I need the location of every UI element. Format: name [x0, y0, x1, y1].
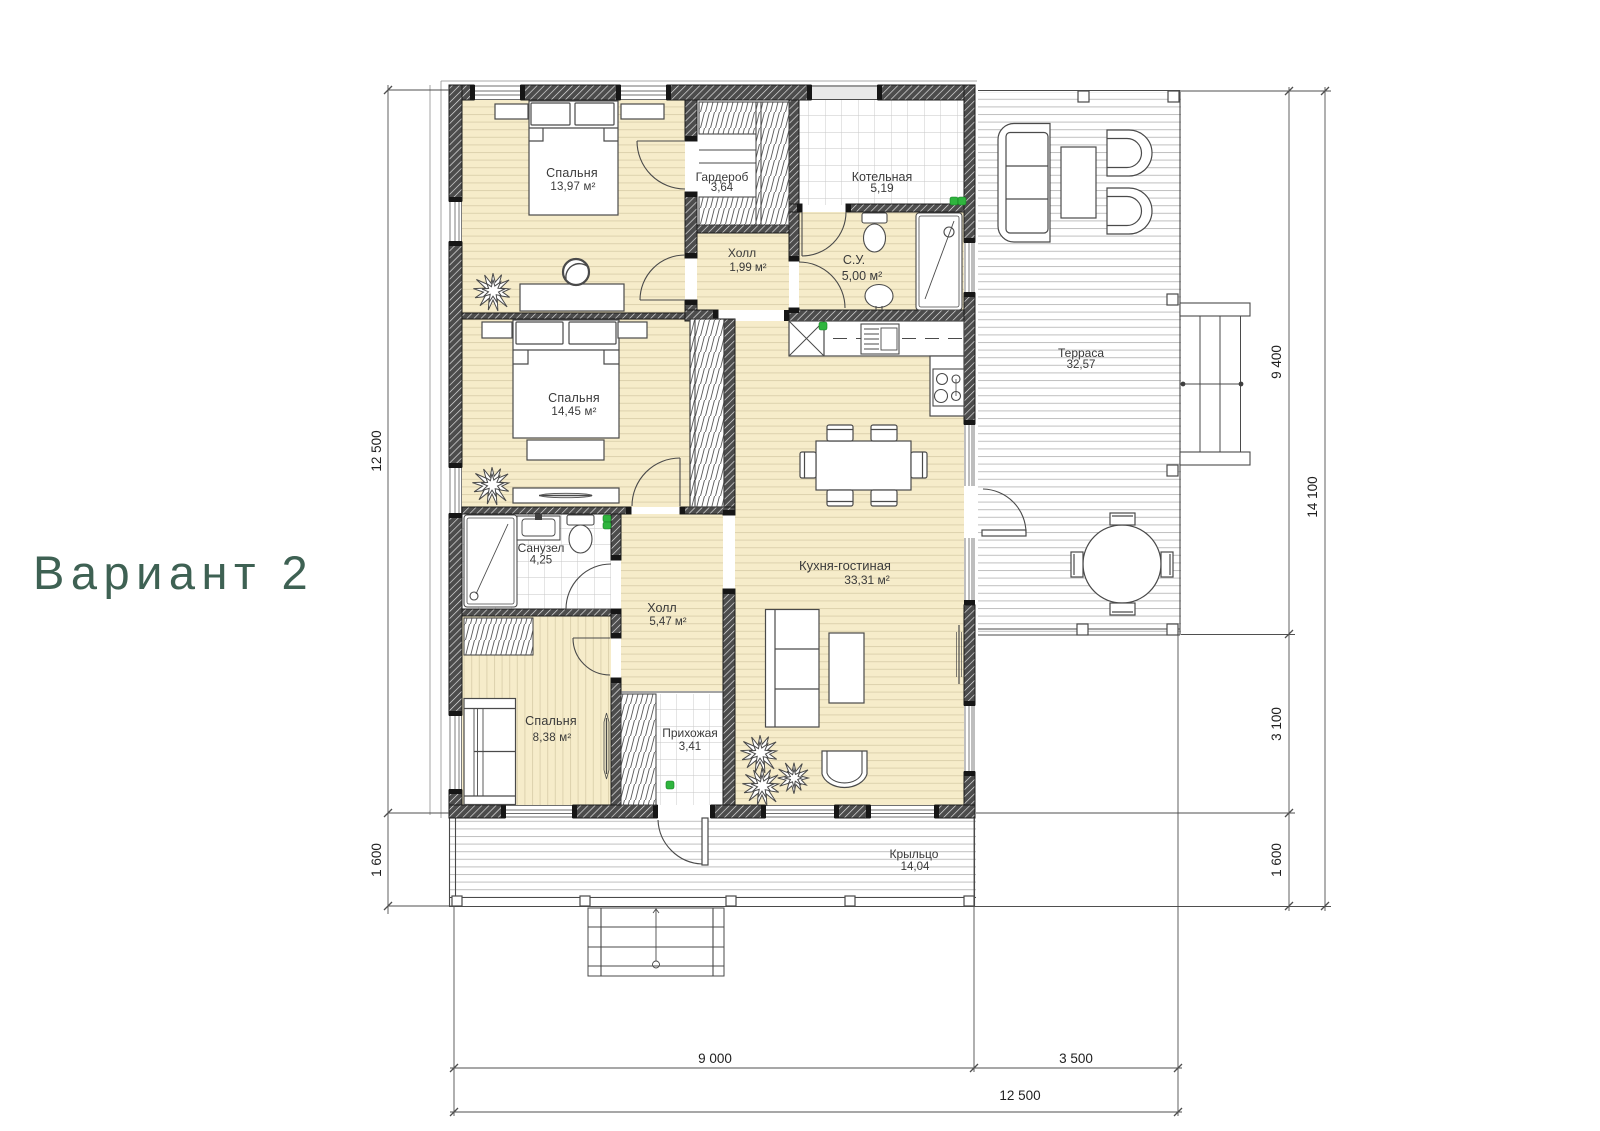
- svg-text:Холл: Холл: [647, 601, 676, 615]
- svg-text:Санузел: Санузел: [518, 541, 565, 555]
- svg-text:Холл: Холл: [728, 246, 756, 260]
- svg-text:14,45 м²: 14,45 м²: [551, 406, 596, 418]
- svg-text:Спальня: Спальня: [546, 166, 598, 180]
- svg-text:3 100: 3 100: [1269, 707, 1284, 741]
- svg-text:9 000: 9 000: [698, 1051, 732, 1066]
- svg-text:8,38 м²: 8,38 м²: [533, 732, 572, 744]
- svg-text:14,04: 14,04: [901, 861, 930, 873]
- svg-text:1 600: 1 600: [1269, 843, 1284, 877]
- svg-text:Вариант 2: Вариант 2: [33, 546, 314, 599]
- svg-text:1,99 м²: 1,99 м²: [729, 262, 766, 274]
- svg-text:1 600: 1 600: [369, 843, 384, 877]
- svg-text:Спальня: Спальня: [525, 714, 577, 728]
- svg-text:12 500: 12 500: [999, 1088, 1040, 1103]
- svg-text:3,41: 3,41: [679, 741, 701, 753]
- svg-text:13,97 м²: 13,97 м²: [550, 181, 595, 193]
- svg-text:Спальня: Спальня: [548, 391, 600, 405]
- svg-text:Крыльцо: Крыльцо: [890, 847, 939, 861]
- svg-text:5,47 м²: 5,47 м²: [649, 616, 686, 628]
- svg-text:14 100: 14 100: [1305, 476, 1320, 517]
- svg-text:9 400: 9 400: [1269, 345, 1284, 379]
- svg-text:5,00 м²: 5,00 м²: [842, 269, 883, 283]
- svg-text:4,25: 4,25: [530, 555, 552, 567]
- svg-text:3 500: 3 500: [1059, 1051, 1093, 1066]
- svg-text:3,64: 3,64: [711, 182, 734, 194]
- svg-text:Терраса: Терраса: [1058, 346, 1104, 360]
- svg-text:Прихожая: Прихожая: [662, 726, 718, 740]
- svg-text:Кухня-гостиная: Кухня-гостиная: [799, 558, 891, 573]
- svg-text:С.У.: С.У.: [843, 253, 865, 267]
- svg-text:12 500: 12 500: [369, 430, 384, 471]
- svg-text:33,31 м²: 33,31 м²: [844, 573, 890, 587]
- svg-text:5,19: 5,19: [870, 181, 894, 195]
- svg-text:32,57: 32,57: [1067, 359, 1096, 371]
